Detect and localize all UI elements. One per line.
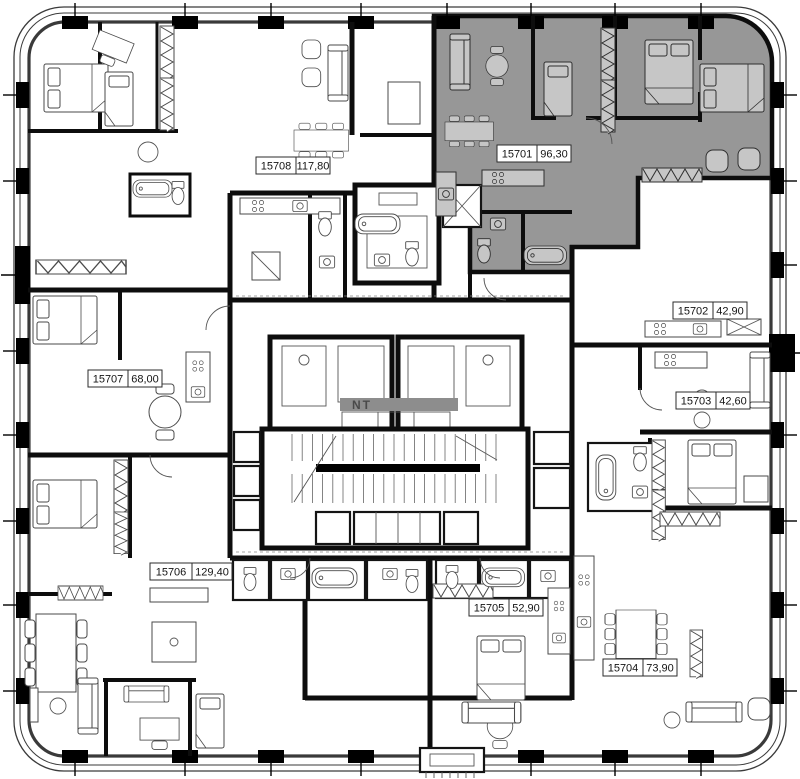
apartment-number: 15706 [156, 567, 187, 579]
floor-plan-canvas: NT [0, 0, 800, 779]
apartment-area: 42,90 [716, 306, 744, 318]
apartment-number: 15708 [261, 161, 292, 173]
apartment-label-15701[interactable]: 15701 96,30 [497, 145, 571, 162]
apartment-label-15706[interactable]: 15706 129,40 [150, 563, 232, 580]
floor-plan: NT [0, 0, 800, 779]
apartment-number: 15703 [681, 396, 712, 408]
apartment-area: 117,80 [297, 161, 330, 173]
apartment-label-15703[interactable]: 15703 42,60 [676, 392, 750, 409]
apartment-number: 15704 [608, 663, 639, 675]
apartment-label-15704[interactable]: 15704 73,90 [603, 659, 677, 676]
apartment-label-15705[interactable]: 15705 52,90 [469, 599, 543, 616]
apartment-area: 42,60 [719, 396, 747, 408]
elevator-shaft-right [398, 337, 522, 429]
apartment-area: 68,00 [131, 374, 159, 386]
furniture-15702 [645, 319, 761, 337]
apartment-number: 15701 [502, 149, 533, 161]
entrance-canopy [420, 748, 484, 778]
stairwell [234, 429, 570, 548]
apartment-area: 73,90 [646, 663, 674, 675]
watermark-text: NT [352, 398, 372, 412]
elevator-shaft-left [270, 337, 392, 429]
apartment-number: 15705 [474, 603, 505, 615]
apartment-label-15702[interactable]: 15702 42,90 [673, 302, 747, 319]
apartment-area: 96,30 [540, 149, 568, 161]
furniture-15704 [574, 440, 770, 728]
stair-landing [316, 464, 480, 472]
apartment-area: 129,40 [195, 567, 229, 579]
apartment-label-15707[interactable]: 15707 68,00 [88, 370, 162, 387]
apartment-label-15708[interactable]: 15708 117,80 [256, 157, 330, 174]
apartment-number: 15707 [93, 374, 124, 386]
apartment-number: 15702 [678, 306, 709, 318]
apartment-area: 52,90 [512, 603, 540, 615]
